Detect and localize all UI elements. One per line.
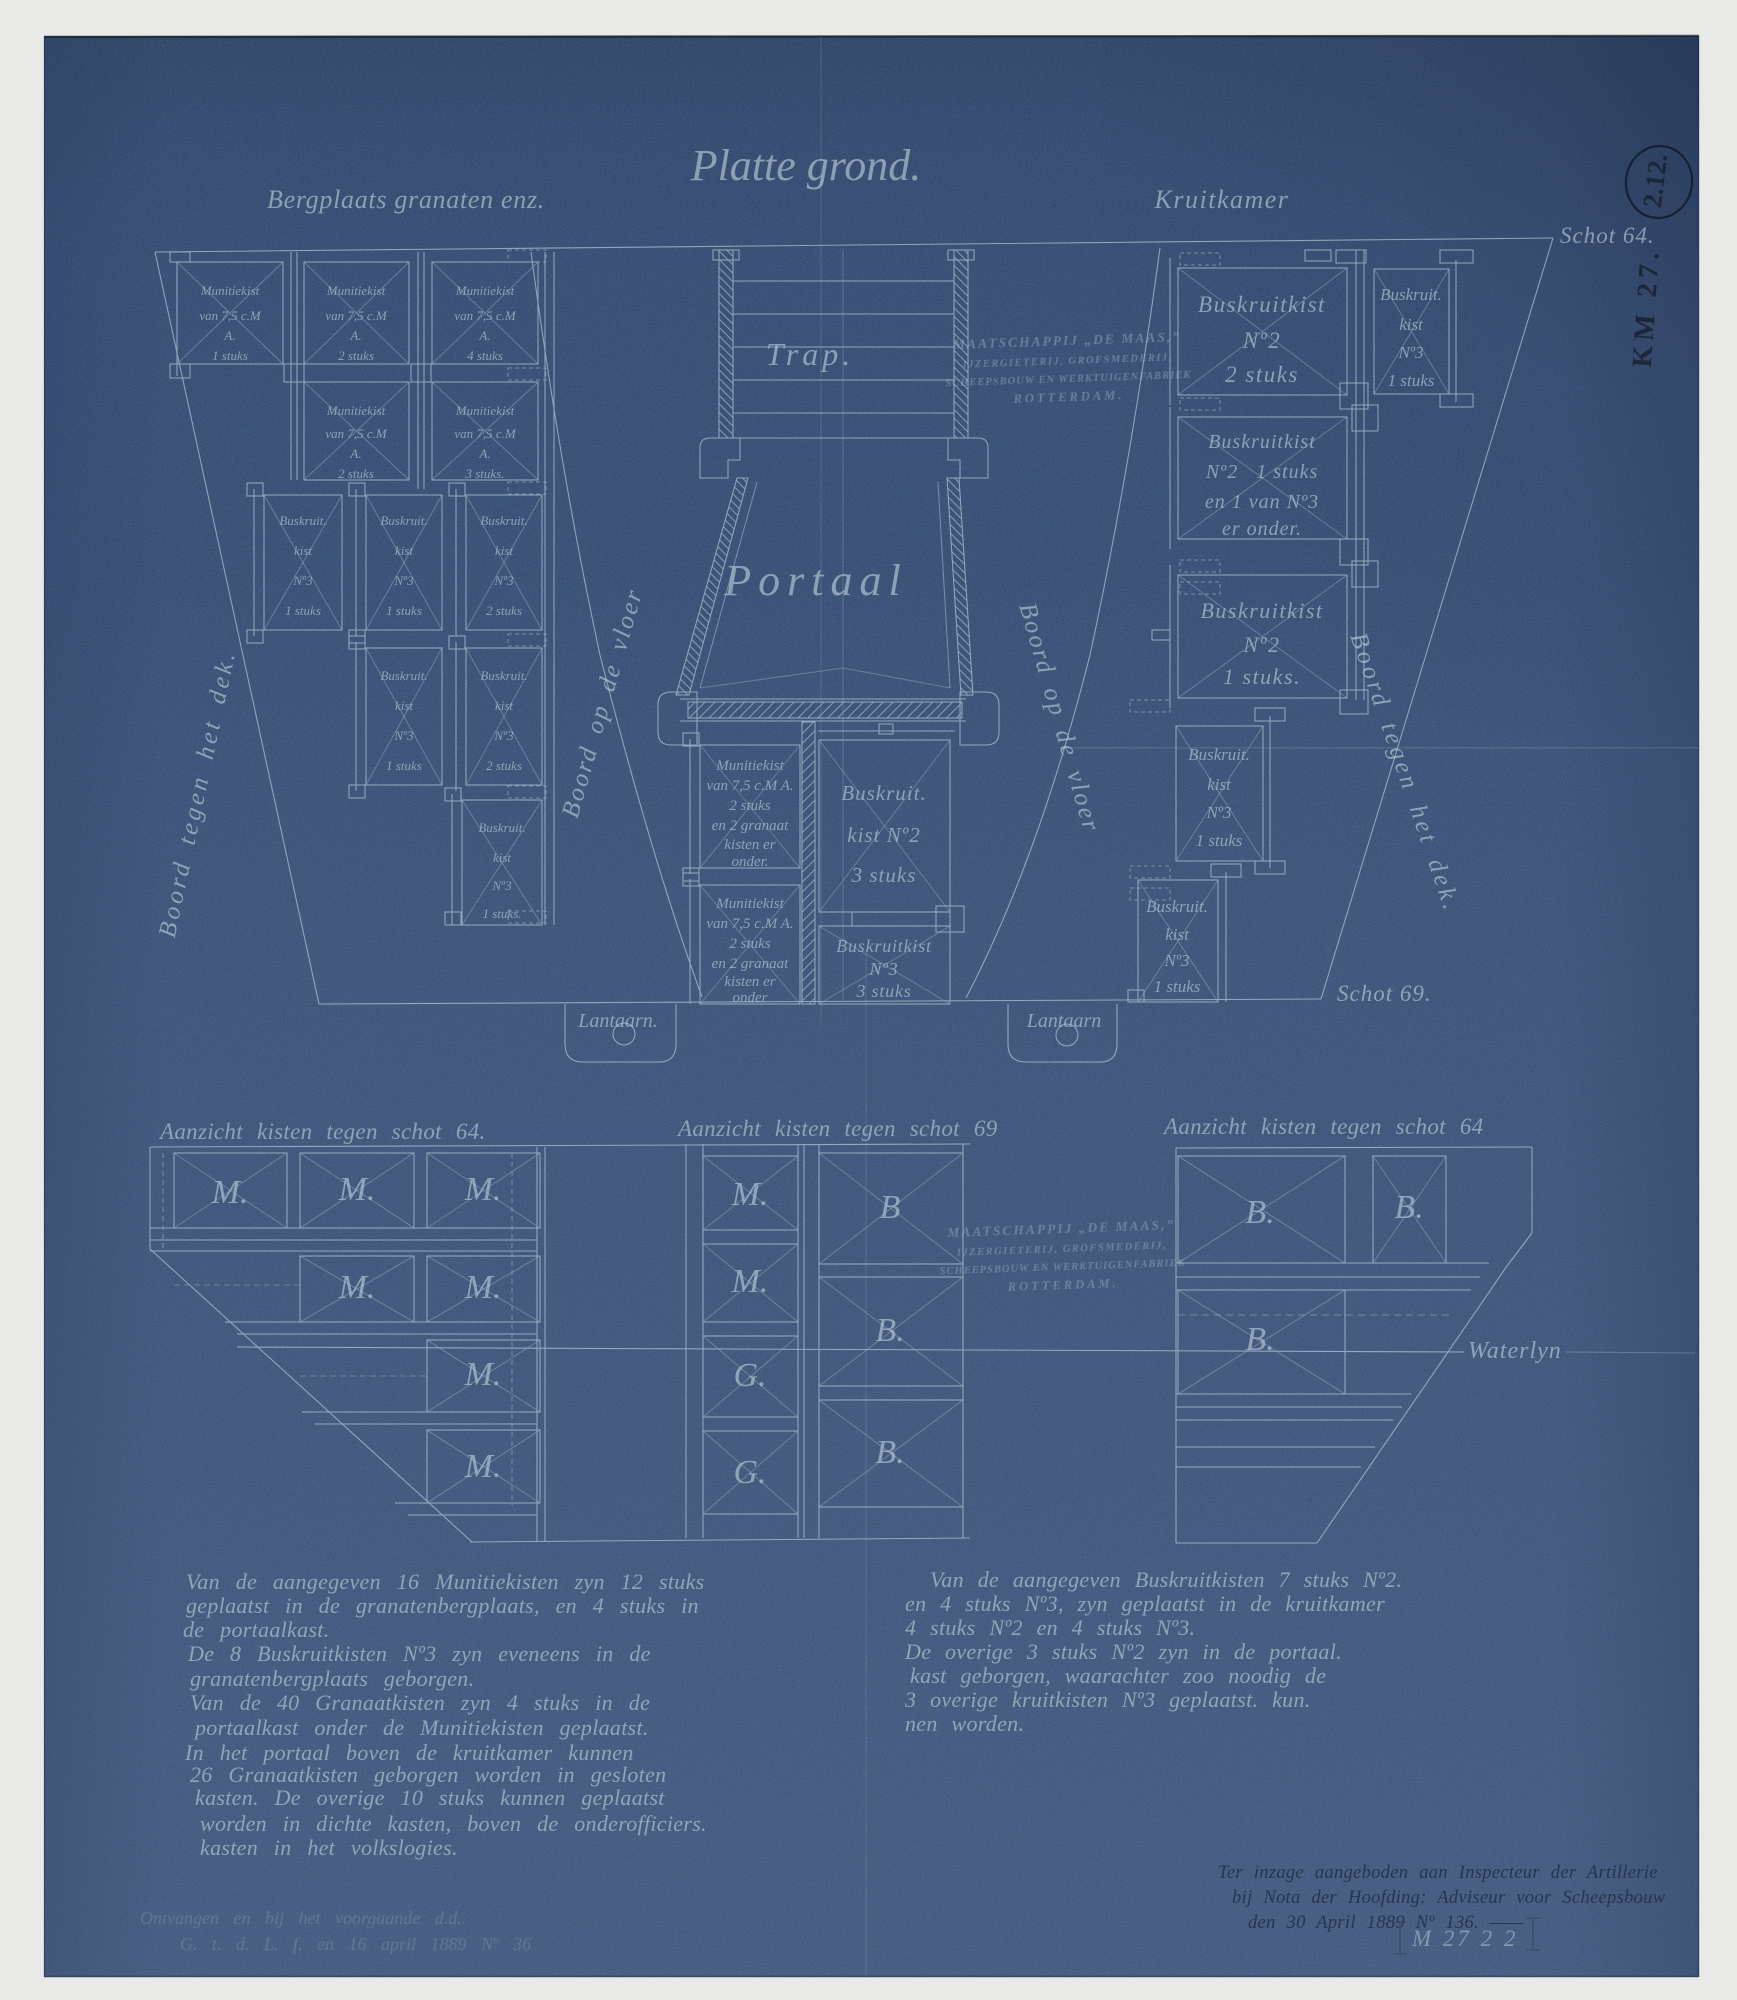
svg-text:1 stuks: 1 stuks [386,603,422,618]
svg-text:van 7,5 c.M A.: van 7,5 c.M A. [706,916,793,932]
svg-text:Nº2 1 stuks: Nº2 1 stuks [1205,461,1319,483]
svg-text:Nº3: Nº3 [493,573,514,588]
svg-text:Kruitkamer: Kruitkamer [1154,185,1290,214]
svg-text:2 stuks: 2 stuks [1225,362,1299,387]
svg-text:M.: M. [731,1176,769,1213]
svg-text:Buskruit.: Buskruit. [380,513,427,528]
svg-text:Nº2: Nº2 [1242,328,1281,353]
svg-text:Nº3: Nº3 [1163,951,1189,970]
svg-text:kist: kist [495,543,513,558]
svg-text:A.: A. [349,446,361,461]
svg-text:Aanzicht kisten tegen schot 64: Aanzicht kisten tegen schot 64. [158,1119,486,1144]
svg-text:worden in dichte kasten, boven: worden in dichte kasten, boven de ondero… [200,1811,707,1836]
svg-text:Buskruit.: Buskruit. [1380,285,1442,304]
svg-text:nen worden.: nen worden. [905,1711,1024,1736]
svg-text:3 stuks: 3 stuks [855,981,911,1001]
svg-text:kast geborgen, waarachter zoo: kast geborgen, waarachter zoo noodig de [910,1663,1326,1688]
svg-text:granatenbergplaats geborgen.: granatenbergplaats geborgen. [190,1666,474,1691]
svg-text:onder.: onder. [731,854,768,870]
svg-text:kist: kist [495,698,513,713]
svg-text:kisten er: kisten er [724,974,775,990]
svg-text:Buskruit.: Buskruit. [480,668,527,683]
svg-text:Schot 69.: Schot 69. [1337,981,1432,1006]
svg-text:B.: B. [875,1312,904,1349]
svg-text:Buskruit.: Buskruit. [478,820,525,835]
svg-text:Buskruit.: Buskruit. [380,668,427,683]
svg-text:B.: B. [1245,1194,1274,1231]
svg-text:2 stuks: 2 stuks [486,603,522,618]
svg-text:1 stuks: 1 stuks [1154,977,1201,996]
svg-text:De overige 3 stuks Nº2 zyn in: De overige 3 stuks Nº2 zyn in de portaal… [904,1639,1342,1664]
svg-text:A.: A. [349,328,361,343]
svg-text:kist: kist [1207,775,1232,794]
svg-text:Aanzicht kisten tegen schot 69: Aanzicht kisten tegen schot 69 [676,1116,998,1141]
svg-text:4 stuks: 4 stuks [467,348,503,363]
svg-text:Buskruit.: Buskruit. [279,513,326,528]
svg-text:kist: kist [395,543,413,558]
svg-text:3 stuks: 3 stuks [851,863,917,887]
svg-text:A.: A. [478,446,490,461]
svg-text:van 7,5 c.M: van 7,5 c.M [325,308,388,323]
svg-text:van 7,5 c.M: van 7,5 c.M [454,426,517,441]
svg-text:26 Granaatkisten geborgen word: 26 Granaatkisten geborgen worden in gesl… [190,1762,666,1787]
svg-text:Munitiekist: Munitiekist [455,403,515,418]
svg-text:Munitiekist: Munitiekist [200,283,260,298]
svg-text:M.: M. [464,1269,502,1306]
svg-text:1 stuks: 1 stuks [1196,831,1243,850]
svg-text:en 2 granaat: en 2 granaat [712,818,789,834]
svg-text:Nº3: Nº3 [393,573,414,588]
svg-text:en 1 van Nº3: en 1 van Nº3 [1205,491,1319,513]
svg-text:Buskruit.: Buskruit. [1188,745,1250,764]
svg-text:Nº3: Nº3 [491,878,512,893]
svg-text:er onder.: er onder. [1222,518,1302,540]
svg-text:van 7,5 c.M: van 7,5 c.M [325,426,388,441]
svg-text:M.: M. [338,1171,376,1208]
svg-text:Nº3: Nº3 [1205,803,1231,822]
svg-text:Schot 64.: Schot 64. [1560,223,1655,248]
svg-text:kist Nº2: kist Nº2 [847,823,920,847]
svg-text:Buskruitkist: Buskruitkist [1198,292,1326,317]
svg-text:en 2 granaat: en 2 granaat [712,956,789,972]
svg-text:Munitiekist: Munitiekist [326,283,386,298]
svg-text:B.: B. [875,1434,904,1471]
svg-text:kist: kist [493,850,511,865]
svg-text:2 stuks: 2 stuks [486,758,522,773]
svg-text:Buskruitkist: Buskruitkist [1208,431,1316,453]
svg-text:M.: M. [464,1356,502,1393]
svg-text:Munitiekist: Munitiekist [455,283,515,298]
svg-text:2 stuks: 2 stuks [338,466,374,481]
svg-text:Van de 40 Granaatkisten zyn 4: Van de 40 Granaatkisten zyn 4 stuks in d… [190,1690,650,1715]
svg-text:M.: M. [731,1263,769,1300]
svg-text:Nº3: Nº3 [393,728,414,743]
svg-text:kisten er: kisten er [724,837,775,853]
svg-text:Trap.: Trap. [766,336,854,372]
svg-text:M.: M. [464,1448,502,1485]
svg-text:1 stuks.: 1 stuks. [483,906,522,921]
svg-text:en 4 stuks Nº3, zyn geplaatst: en 4 stuks Nº3, zyn geplaatst in de krui… [905,1591,1385,1616]
svg-text:kasten. De overige 10 stuks k: kasten. De overige 10 stuks kunnen gepla… [195,1785,665,1810]
svg-text:Buskruit.: Buskruit. [1146,897,1208,916]
svg-text:Portaal: Portaal [723,556,907,605]
svg-text:M.: M. [338,1269,376,1306]
svg-text:1 stuks: 1 stuks [386,758,422,773]
svg-text:van 7,5 c.M: van 7,5 c.M [454,308,517,323]
svg-text:Buskruitkist: Buskruitkist [836,936,932,956]
svg-text:A.: A. [223,328,235,343]
svg-text:Buskruitkist: Buskruitkist [1200,598,1323,623]
svg-text:de portaalkast.: de portaalkast. [183,1617,330,1642]
svg-text:3 stuks.: 3 stuks. [465,466,505,481]
svg-text:kist: kist [395,698,413,713]
svg-text:Aanzicht kisten tegen schot 64: Aanzicht kisten tegen schot 64 [1162,1114,1484,1139]
svg-text:Buskruit.: Buskruit. [480,513,527,528]
svg-text:G.: G. [733,1454,766,1491]
svg-text:2 stuks: 2 stuks [729,798,770,814]
svg-text:2 stuks: 2 stuks [338,348,374,363]
svg-text:Munitiekist: Munitiekist [326,403,386,418]
svg-text:De 8 Buskruitkisten Nº3 zyn ev: De 8 Buskruitkisten Nº3 zyn eveneens in … [187,1641,651,1666]
svg-text:Waterlyn: Waterlyn [1468,1338,1562,1364]
svg-text:onder: onder [733,990,768,1006]
svg-text:portaalkast onder de Munitieki: portaalkast onder de Munitiekisten gepla… [193,1715,649,1740]
svg-text:Munitiekist: Munitiekist [715,896,784,912]
svg-text:Nº3: Nº3 [292,573,313,588]
svg-text:G. t. d. L. f. en 16 april 188: G. t. d. L. f. en 16 april 1889 Nº 36 [180,1934,531,1954]
svg-text:bij Nota der Hoofding: Adviseu: bij Nota der Hoofding: Adviseur voor Sch… [1232,1888,1666,1908]
svg-text:Ontvangen en bij het voorgaand: Ontvangen en bij het voorgaande d.d. [140,1908,462,1928]
svg-text:kasten in het volkslogies.: kasten in het volkslogies. [200,1835,458,1860]
svg-text:van 7,5 c.M A.: van 7,5 c.M A. [706,778,793,794]
svg-text:1 stuks.: 1 stuks. [1223,664,1301,689]
svg-text:van 7,5 c.M: van 7,5 c.M [199,308,262,323]
svg-text:geplaatst in de granatenbergpl: geplaatst in de granatenbergplaats, en 4… [186,1593,699,1618]
svg-text:kist: kist [1399,315,1424,334]
svg-text:Van de aangegeven 16 Munitieki: Van de aangegeven 16 Munitiekisten zyn 1… [186,1569,705,1594]
svg-text:M.: M. [211,1174,249,1211]
svg-text:Buskruit.: Buskruit. [841,781,926,805]
svg-text:B.: B. [1245,1321,1274,1358]
svg-text:Van de aangegeven Buskruitkist: Van de aangegeven Buskruitkisten 7 stuks… [930,1567,1402,1592]
svg-text:1 stuks: 1 stuks [1388,371,1435,390]
svg-text:Nº2: Nº2 [1243,632,1281,657]
svg-text:M.: M. [464,1171,502,1208]
svg-text:3 overige kruitkisten Nº3 gepl: 3 overige kruitkisten Nº3 geplaatst. kun… [904,1687,1311,1712]
svg-text:G.: G. [733,1357,766,1394]
svg-text:M 27 2 2: M 27 2 2 [1411,1926,1518,1951]
svg-text:Platte grond.: Platte grond. [690,141,922,190]
svg-text:B: B [880,1189,901,1226]
svg-text:Nº3: Nº3 [1397,343,1423,362]
svg-text:Nº3: Nº3 [869,959,899,979]
svg-text:Nº3: Nº3 [493,728,514,743]
svg-text:A.: A. [478,328,490,343]
svg-text:Lantaarn.: Lantaarn. [577,1010,657,1032]
svg-text:kist: kist [1165,925,1190,944]
svg-text:Bergplaats granaten enz.: Bergplaats granaten enz. [267,185,545,214]
svg-text:kist: kist [294,543,312,558]
svg-text:1 stuks: 1 stuks [285,603,321,618]
svg-text:Ter inzage aangeboden aan Insp: Ter inzage aangeboden aan Inspecteur der… [1218,1863,1658,1883]
svg-text:2 stuks: 2 stuks [729,936,770,952]
svg-text:Lantaarn: Lantaarn [1026,1010,1101,1032]
svg-text:B.: B. [1394,1189,1423,1226]
svg-text:1 stuks: 1 stuks [212,348,248,363]
svg-text:4 stuks Nº2 en 4 stuks Nº3.: 4 stuks Nº2 en 4 stuks Nº3. [905,1615,1195,1640]
svg-text:Munitiekist: Munitiekist [715,758,784,774]
